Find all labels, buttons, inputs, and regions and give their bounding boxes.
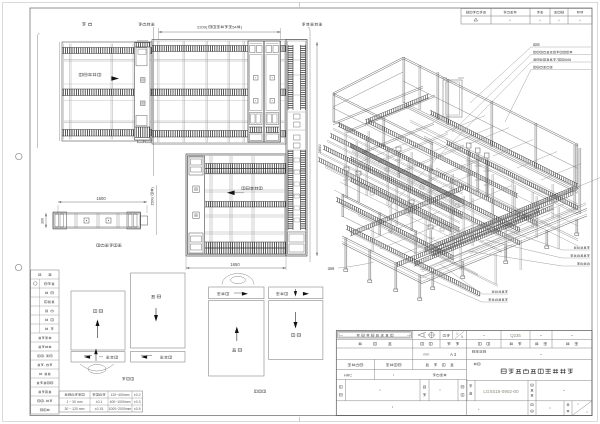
svg-text:120~400mm: 120~400mm (111, 393, 130, 397)
svg-text:·: · (44, 354, 45, 358)
svg-text:): ) (151, 187, 155, 188)
svg-text:2200(: 2200( (197, 25, 208, 30)
svg-text:): ) (241, 25, 243, 30)
svg-text:mm: mm (423, 353, 429, 357)
svg-text:·: · (42, 372, 43, 376)
svg-text:7: 7 (556, 58, 558, 62)
svg-text:·: · (44, 363, 45, 367)
svg-text:±0.3: ±0.3 (134, 400, 141, 404)
svg-text:1500: 1500 (96, 196, 106, 201)
svg-text:5: 5 (461, 335, 463, 339)
svg-text:±0.15: ±0.15 (95, 407, 104, 411)
svg-text:A 3: A 3 (450, 352, 457, 357)
svg-text:1650: 1650 (230, 262, 240, 267)
svg-text:1500(: 1500( (151, 196, 155, 206)
svg-text:Q235: Q235 (510, 333, 521, 338)
svg-text:30 ~ 120 mm: 30 ~ 120 mm (65, 407, 85, 411)
svg-text:3800: 3800 (317, 144, 322, 154)
svg-text:54: 54 (232, 25, 237, 30)
svg-text:1: 1 (456, 332, 458, 336)
svg-text:±0.5: ±0.5 (134, 407, 141, 411)
svg-text:HRC: HRC (344, 374, 352, 378)
svg-text:LGS018-0902-00: LGS018-0902-00 (483, 389, 519, 394)
svg-text:±0.1: ±0.1 (96, 400, 103, 404)
svg-text:300: 300 (41, 218, 45, 224)
svg-text:1 ~ 30 mm: 1 ~ 30 mm (66, 400, 82, 404)
svg-text:1000~2000mm: 1000~2000mm (109, 407, 132, 411)
svg-text:±0.2: ±0.2 (134, 393, 141, 397)
svg-text:400~1000mm: 400~1000mm (110, 400, 131, 404)
svg-text:·: · (44, 399, 45, 403)
